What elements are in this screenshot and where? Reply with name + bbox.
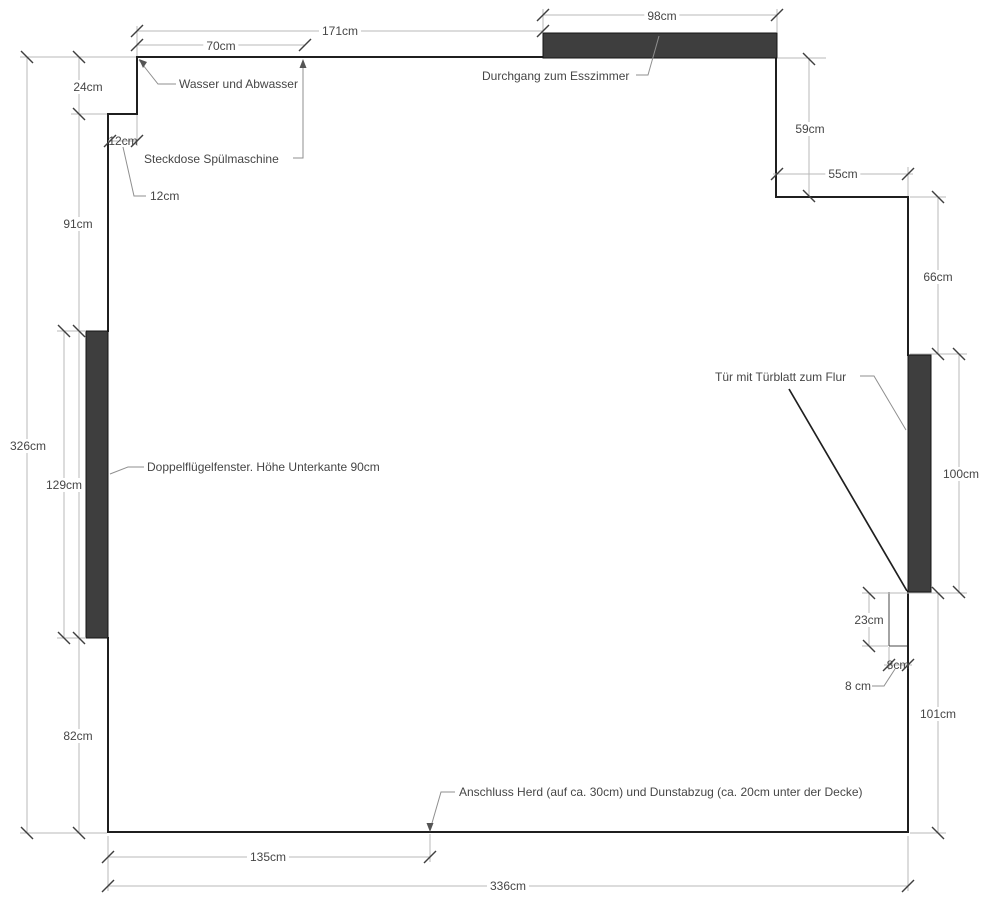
dim-label-91cm: 91cm: [60, 217, 95, 231]
dim-label-66cm: 66cm: [920, 270, 955, 284]
dim-label-135cm: 135cm: [247, 850, 289, 864]
wall-notch: [889, 592, 907, 646]
arrowhead-water: [139, 59, 147, 68]
passage-opening: [543, 33, 777, 58]
door-opening: [908, 355, 931, 592]
dim-label-326cm: 326cm: [7, 439, 49, 453]
callout-label-8cm: 8 cm: [845, 680, 871, 692]
arrowhead-stove: [427, 823, 434, 832]
dim-label-101cm: 101cm: [917, 707, 959, 721]
annotation-water: Wasser und Abwasser: [179, 78, 298, 90]
leader-stove: [430, 792, 455, 830]
dim-label-55cm: 55cm: [825, 167, 860, 181]
floor-plan: 70cm 171cm 98cm 24cm 91cm 326cm 129cm 82…: [0, 0, 993, 900]
annotation-dishwasher-socket: Steckdose Spülmaschine: [144, 153, 279, 165]
dim-label-23cm: 23cm: [851, 613, 886, 627]
plan-linework: [0, 0, 993, 900]
callout-label-12cm: 12cm: [150, 190, 179, 202]
annotation-stove: Anschluss Herd (auf ca. 30cm) und Dunsta…: [459, 786, 863, 798]
dimension-ticks: [21, 9, 965, 892]
dim-label-100cm: 100cm: [940, 467, 982, 481]
arrowhead-dishwasher-socket: [300, 59, 307, 68]
dim-label-70cm: 70cm: [203, 39, 238, 53]
dim-label-12cm: 12cm: [108, 135, 137, 147]
dim-label-171cm: 171cm: [319, 24, 361, 38]
leader-12cm: [123, 147, 146, 196]
annotation-passage: Durchgang zum Esszimmer: [482, 70, 629, 82]
dim-label-24cm: 24cm: [70, 80, 105, 94]
annotation-door: Tür mit Türblatt zum Flur: [715, 371, 846, 383]
leader-door: [860, 376, 906, 430]
dim-label-59cm: 59cm: [792, 122, 827, 136]
dim-label-82cm: 82cm: [60, 729, 95, 743]
annotation-window: Doppelflügelfenster. Höhe Unterkante 90c…: [147, 461, 380, 473]
dim-label-336cm: 336cm: [487, 879, 529, 893]
dim-label-8cm-small: 8cm: [887, 659, 910, 671]
leader-window: [110, 467, 144, 474]
door-leaf-line: [789, 389, 907, 591]
walls: [107, 57, 909, 833]
window-opening: [86, 331, 108, 638]
dim-label-129cm: 129cm: [43, 478, 85, 492]
dimension-lines: [27, 15, 959, 886]
dim-label-98cm: 98cm: [644, 9, 679, 23]
